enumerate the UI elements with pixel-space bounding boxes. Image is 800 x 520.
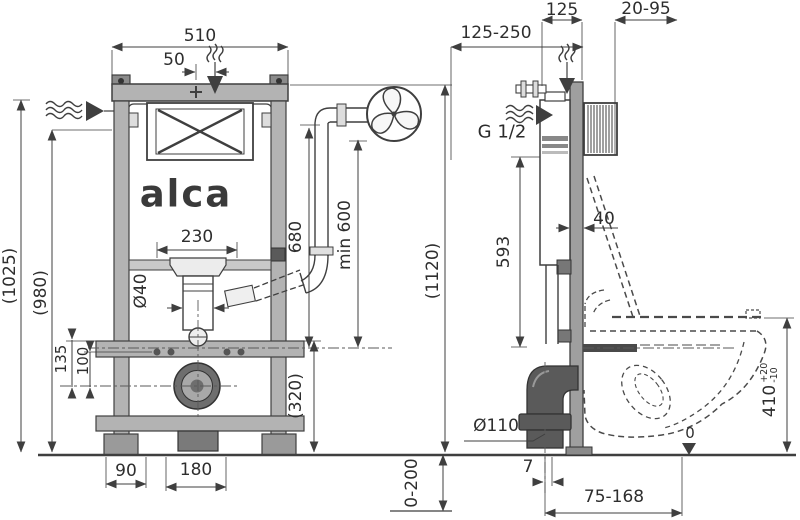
waste-elbow [519, 366, 578, 448]
dim-75-168-label: 75-168 [584, 487, 644, 507]
dim-125-label: 125 [546, 0, 578, 20]
dim-135-label: 135 [52, 345, 70, 374]
dim-230-label: 230 [181, 227, 213, 247]
floor-datum-label: 0 [685, 424, 695, 442]
dim-320-label: (320) [286, 373, 306, 419]
flush-plate-side [583, 103, 617, 155]
water-inlet-icon-front [46, 101, 114, 121]
extractor-fan-icon [367, 87, 422, 141]
dim-1120-label: (1120) [423, 243, 443, 300]
dim-593-label: 593 [494, 236, 514, 268]
dim-410-label: 410 +20 -10 [760, 363, 780, 418]
drawing-linework [0, 0, 800, 520]
dim-0-200-label: 0-200 [402, 458, 422, 507]
dim-50-label: 50 [163, 50, 185, 70]
drain-flange-front [174, 363, 220, 451]
dim-1025-label: (1025) [0, 248, 20, 305]
water-connection-label: G 1/2 [478, 122, 527, 143]
centerlines [60, 300, 392, 418]
dim-680-label: 680 [286, 221, 306, 253]
dim-90-label: 90 [115, 461, 137, 481]
dim-410-tol-minus: -10 [770, 363, 780, 383]
drawing-canvas: alca 510 50 (1025) (980) 230 Ø40 680 min… [0, 0, 800, 520]
dim-20-95-label: 20-95 [621, 0, 670, 19]
dim-7-label: 7 [523, 457, 534, 477]
dim-980-label: (980) [31, 270, 51, 316]
floor-datum-icon [682, 443, 696, 455]
dim-510-label: 510 [184, 26, 216, 46]
inspection-opening [147, 103, 253, 160]
dim-410-value: 410 [760, 385, 780, 417]
dim-d110-label: Ø110 [473, 416, 519, 436]
dim-40-label: 40 [593, 209, 615, 229]
dim-d40-label: Ø40 [131, 273, 151, 308]
dim-180-label: 180 [180, 460, 212, 480]
dim-125-250-label: 125-250 [460, 23, 531, 43]
dim-100-label: 100 [74, 347, 92, 376]
brand-logo: alca [140, 173, 233, 216]
dim-min600-label: min 600 [335, 200, 355, 270]
